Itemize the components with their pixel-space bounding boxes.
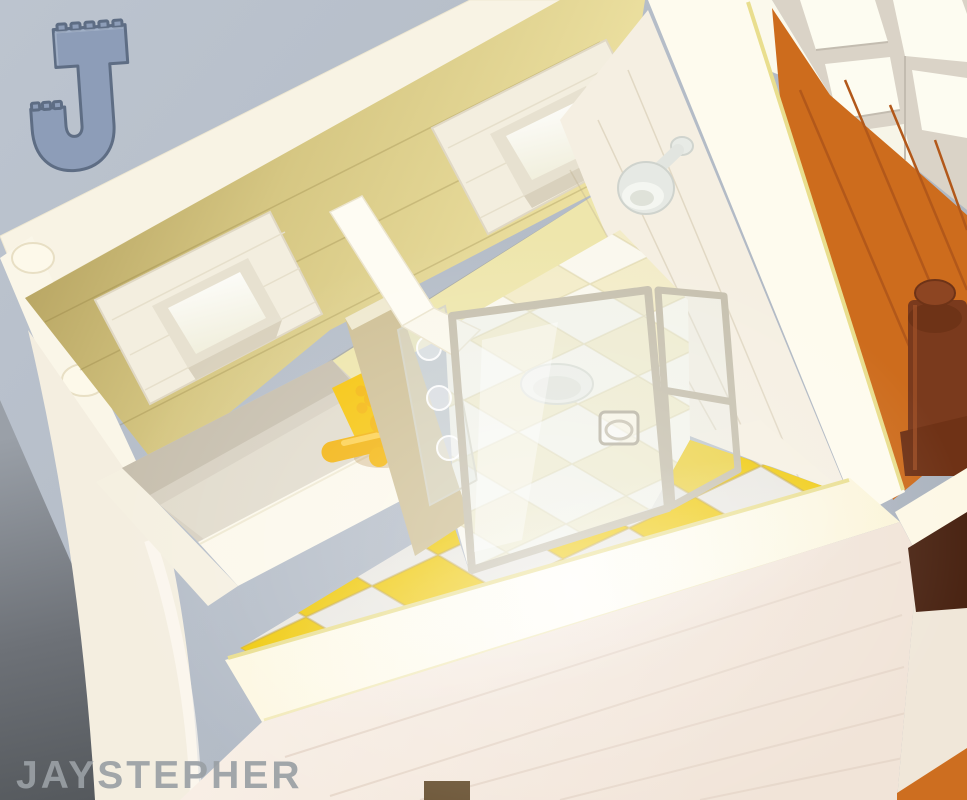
render-canvas: JAYSTEPHER xyxy=(0,0,967,800)
lego-bathroom-render: JAYSTEPHER xyxy=(0,0,967,800)
jaystepher-watermark: JAYSTEPHER xyxy=(16,754,303,797)
lego-stud xyxy=(12,243,54,273)
